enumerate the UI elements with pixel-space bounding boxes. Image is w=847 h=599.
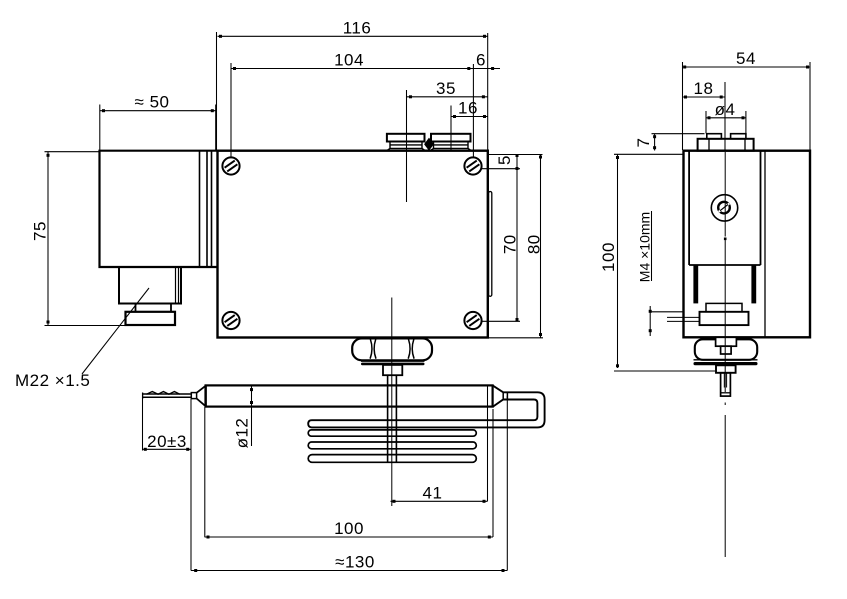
svg-text:100: 100 (334, 519, 364, 538)
svg-text:≈130: ≈130 (335, 553, 375, 572)
svg-text:104: 104 (334, 51, 364, 70)
svg-text:7: 7 (634, 138, 653, 148)
svg-text:18: 18 (694, 79, 714, 98)
svg-text:116: 116 (343, 18, 372, 37)
svg-text:41: 41 (423, 483, 443, 502)
svg-text:35: 35 (436, 79, 456, 98)
svg-text:5: 5 (495, 155, 514, 165)
svg-text:54: 54 (736, 49, 756, 68)
svg-text:80: 80 (524, 234, 543, 254)
svg-text:ø12: ø12 (233, 418, 252, 449)
svg-text:20±3: 20±3 (147, 432, 187, 451)
svg-text:ø4: ø4 (715, 100, 736, 119)
svg-text:70: 70 (500, 234, 519, 254)
svg-text:M4 ×10mm: M4 ×10mm (637, 212, 653, 282)
svg-text:16: 16 (458, 99, 478, 118)
svg-text:100: 100 (599, 242, 618, 272)
svg-text:75: 75 (31, 221, 50, 241)
svg-text:M22 ×1.5: M22 ×1.5 (15, 371, 90, 390)
svg-text:6: 6 (476, 51, 486, 70)
svg-text:≈ 50: ≈ 50 (135, 93, 170, 112)
